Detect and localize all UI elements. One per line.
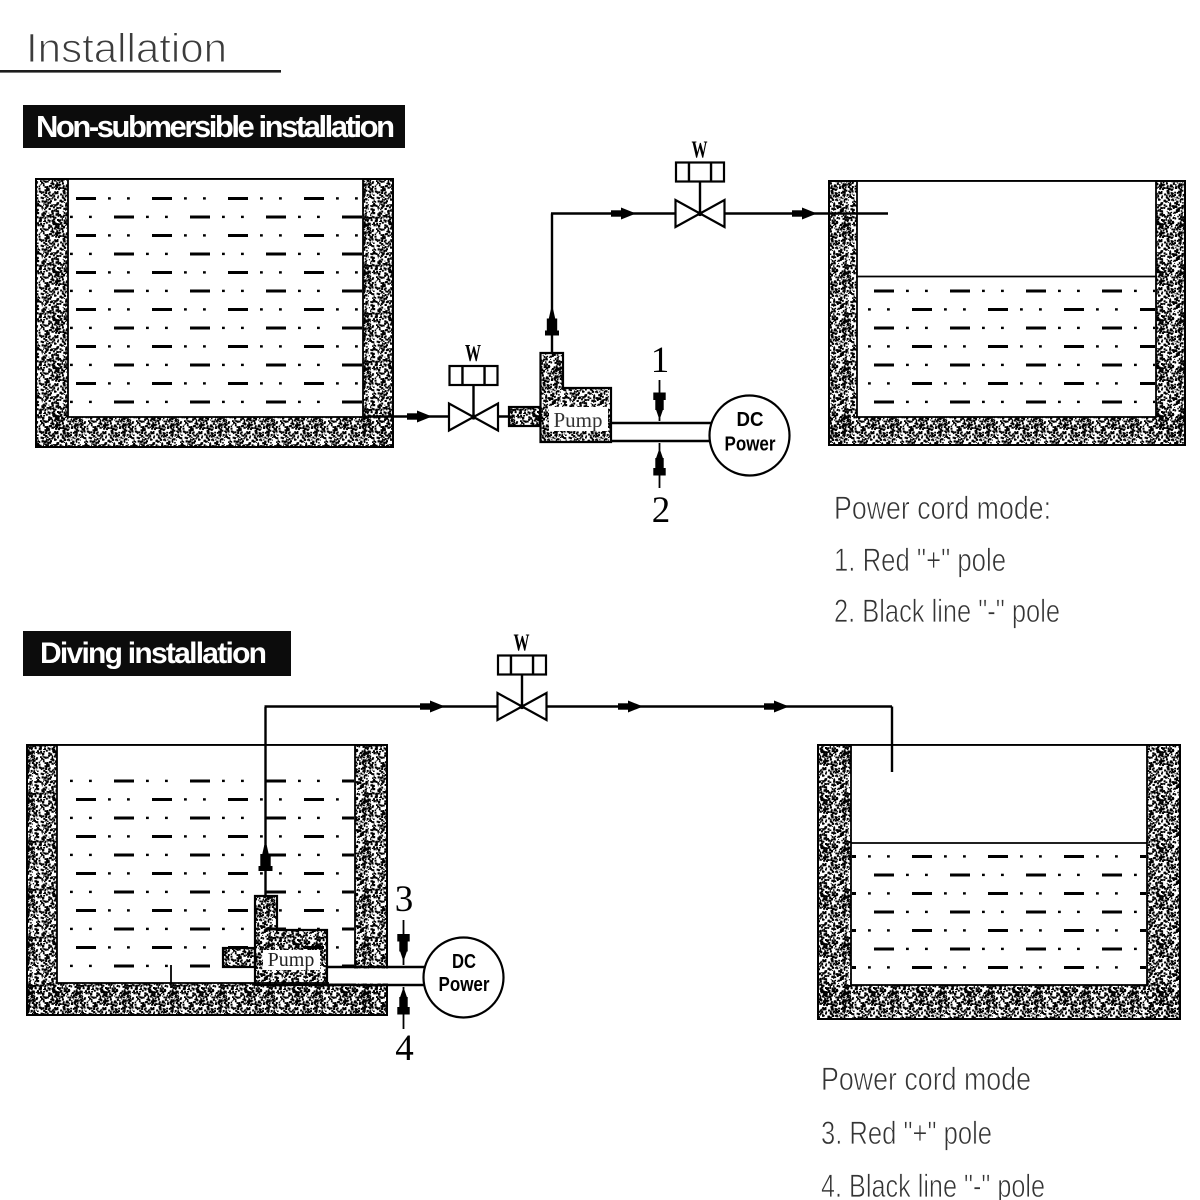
svg-text:Power cord mode: Power cord mode	[821, 1061, 1031, 1097]
svg-text:Non-submersible installation: Non-submersible installation	[36, 109, 395, 144]
svg-text:Power: Power	[439, 974, 490, 996]
svg-text:DC: DC	[452, 951, 476, 973]
svg-text:Installation: Installation	[26, 25, 227, 71]
svg-text:DC: DC	[737, 409, 764, 431]
svg-text:3. Red "+" pole: 3. Red "+" pole	[821, 1115, 992, 1151]
svg-text:4. Black line "-" pole: 4. Black line "-" pole	[821, 1168, 1045, 1200]
svg-text:2. Black line "-" pole: 2. Black line "-" pole	[834, 593, 1060, 629]
svg-text:Pump: Pump	[268, 949, 315, 971]
svg-text:1: 1	[651, 340, 670, 381]
svg-text:Power: Power	[725, 434, 776, 456]
svg-text:4: 4	[395, 1028, 414, 1069]
svg-text:1. Red "+" pole: 1. Red "+" pole	[834, 542, 1006, 578]
svg-text:2: 2	[652, 490, 671, 531]
svg-text:W: W	[692, 138, 708, 164]
svg-text:W: W	[465, 341, 481, 367]
svg-text:Diving installation: Diving installation	[40, 637, 267, 670]
svg-text:Power cord mode:: Power cord mode:	[834, 490, 1051, 526]
svg-text:3: 3	[395, 879, 414, 920]
svg-text:W: W	[514, 631, 530, 657]
svg-text:Pump: Pump	[553, 408, 602, 432]
